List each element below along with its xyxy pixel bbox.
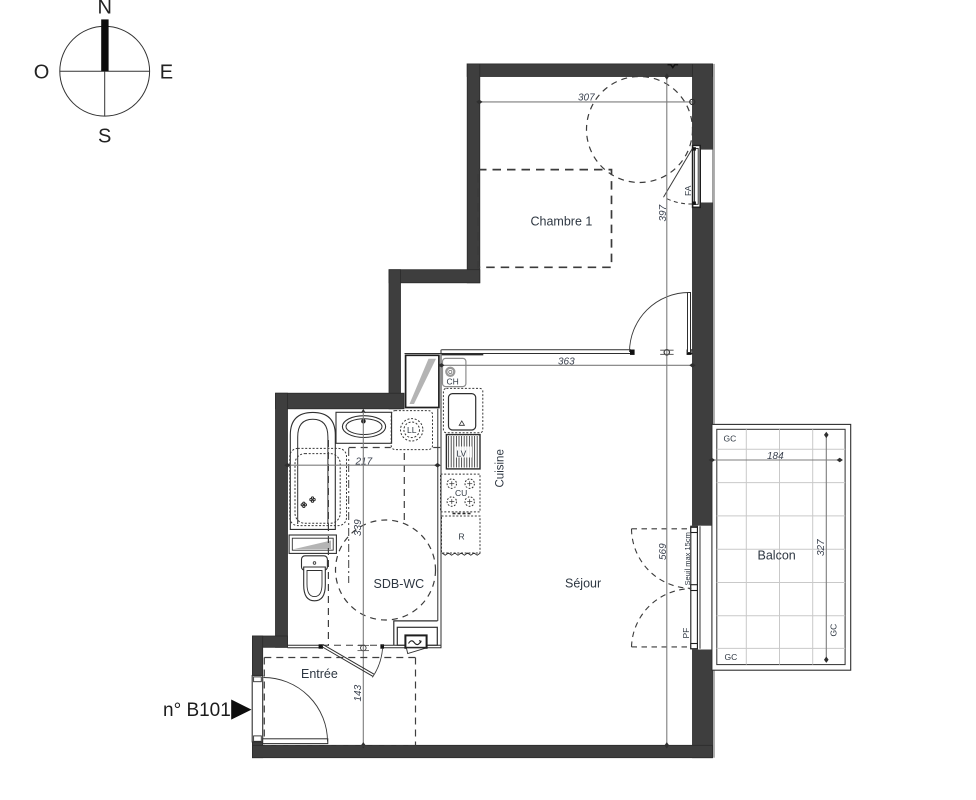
- svg-text:CU: CU: [455, 488, 467, 498]
- svg-text:LV: LV: [457, 449, 467, 459]
- svg-text:FA: FA: [683, 185, 693, 196]
- svg-text:GC: GC: [724, 434, 737, 444]
- svg-text:339: 339: [353, 519, 364, 536]
- svg-text:CH: CH: [447, 376, 459, 386]
- svg-text:LL: LL: [407, 425, 417, 435]
- svg-text:143: 143: [353, 684, 364, 701]
- svg-text:n° B101: n° B101: [163, 700, 231, 721]
- svg-text:GC: GC: [725, 652, 738, 662]
- svg-text:S: S: [98, 125, 111, 147]
- svg-text:O: O: [34, 62, 50, 84]
- svg-text:N: N: [97, 0, 111, 19]
- svg-text:PF: PF: [681, 628, 691, 639]
- svg-text:Cuisine: Cuisine: [495, 449, 507, 487]
- svg-text:GC: GC: [829, 624, 839, 637]
- svg-text:397: 397: [658, 204, 669, 221]
- svg-text:Chambre 1: Chambre 1: [531, 214, 593, 228]
- svg-text:184: 184: [767, 451, 784, 462]
- svg-text:R: R: [459, 532, 465, 542]
- svg-text:363: 363: [558, 356, 575, 367]
- svg-text:E: E: [160, 62, 173, 84]
- svg-text:327: 327: [816, 539, 827, 556]
- svg-text:Séjour: Séjour: [565, 576, 601, 590]
- svg-text:SDB-WC: SDB-WC: [374, 577, 425, 591]
- svg-text:569: 569: [658, 543, 669, 560]
- svg-text:Seuil max 15cm: Seuil max 15cm: [683, 532, 692, 585]
- svg-text:Balcon: Balcon: [758, 549, 796, 563]
- svg-text:307: 307: [578, 93, 595, 104]
- svg-text:Entrée: Entrée: [301, 667, 338, 681]
